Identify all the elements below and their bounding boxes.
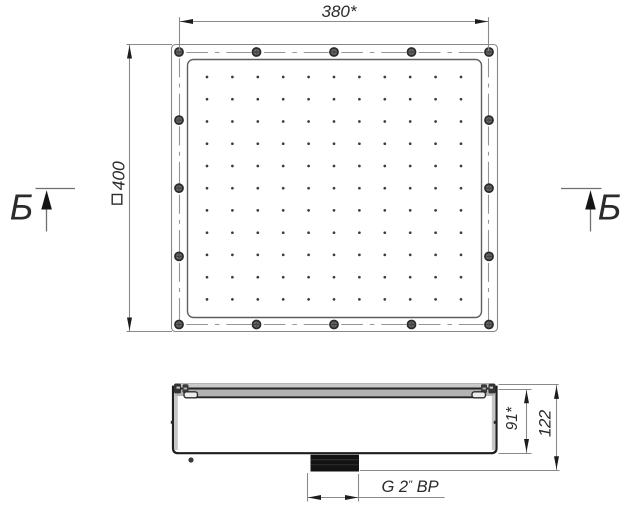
svg-text:91*: 91* <box>504 406 521 430</box>
svg-text:380*: 380* <box>322 2 358 21</box>
svg-text:400: 400 <box>108 161 128 190</box>
svg-text:Б: Б <box>598 187 621 228</box>
svg-text:122: 122 <box>535 409 554 437</box>
svg-text:Б: Б <box>10 187 33 228</box>
